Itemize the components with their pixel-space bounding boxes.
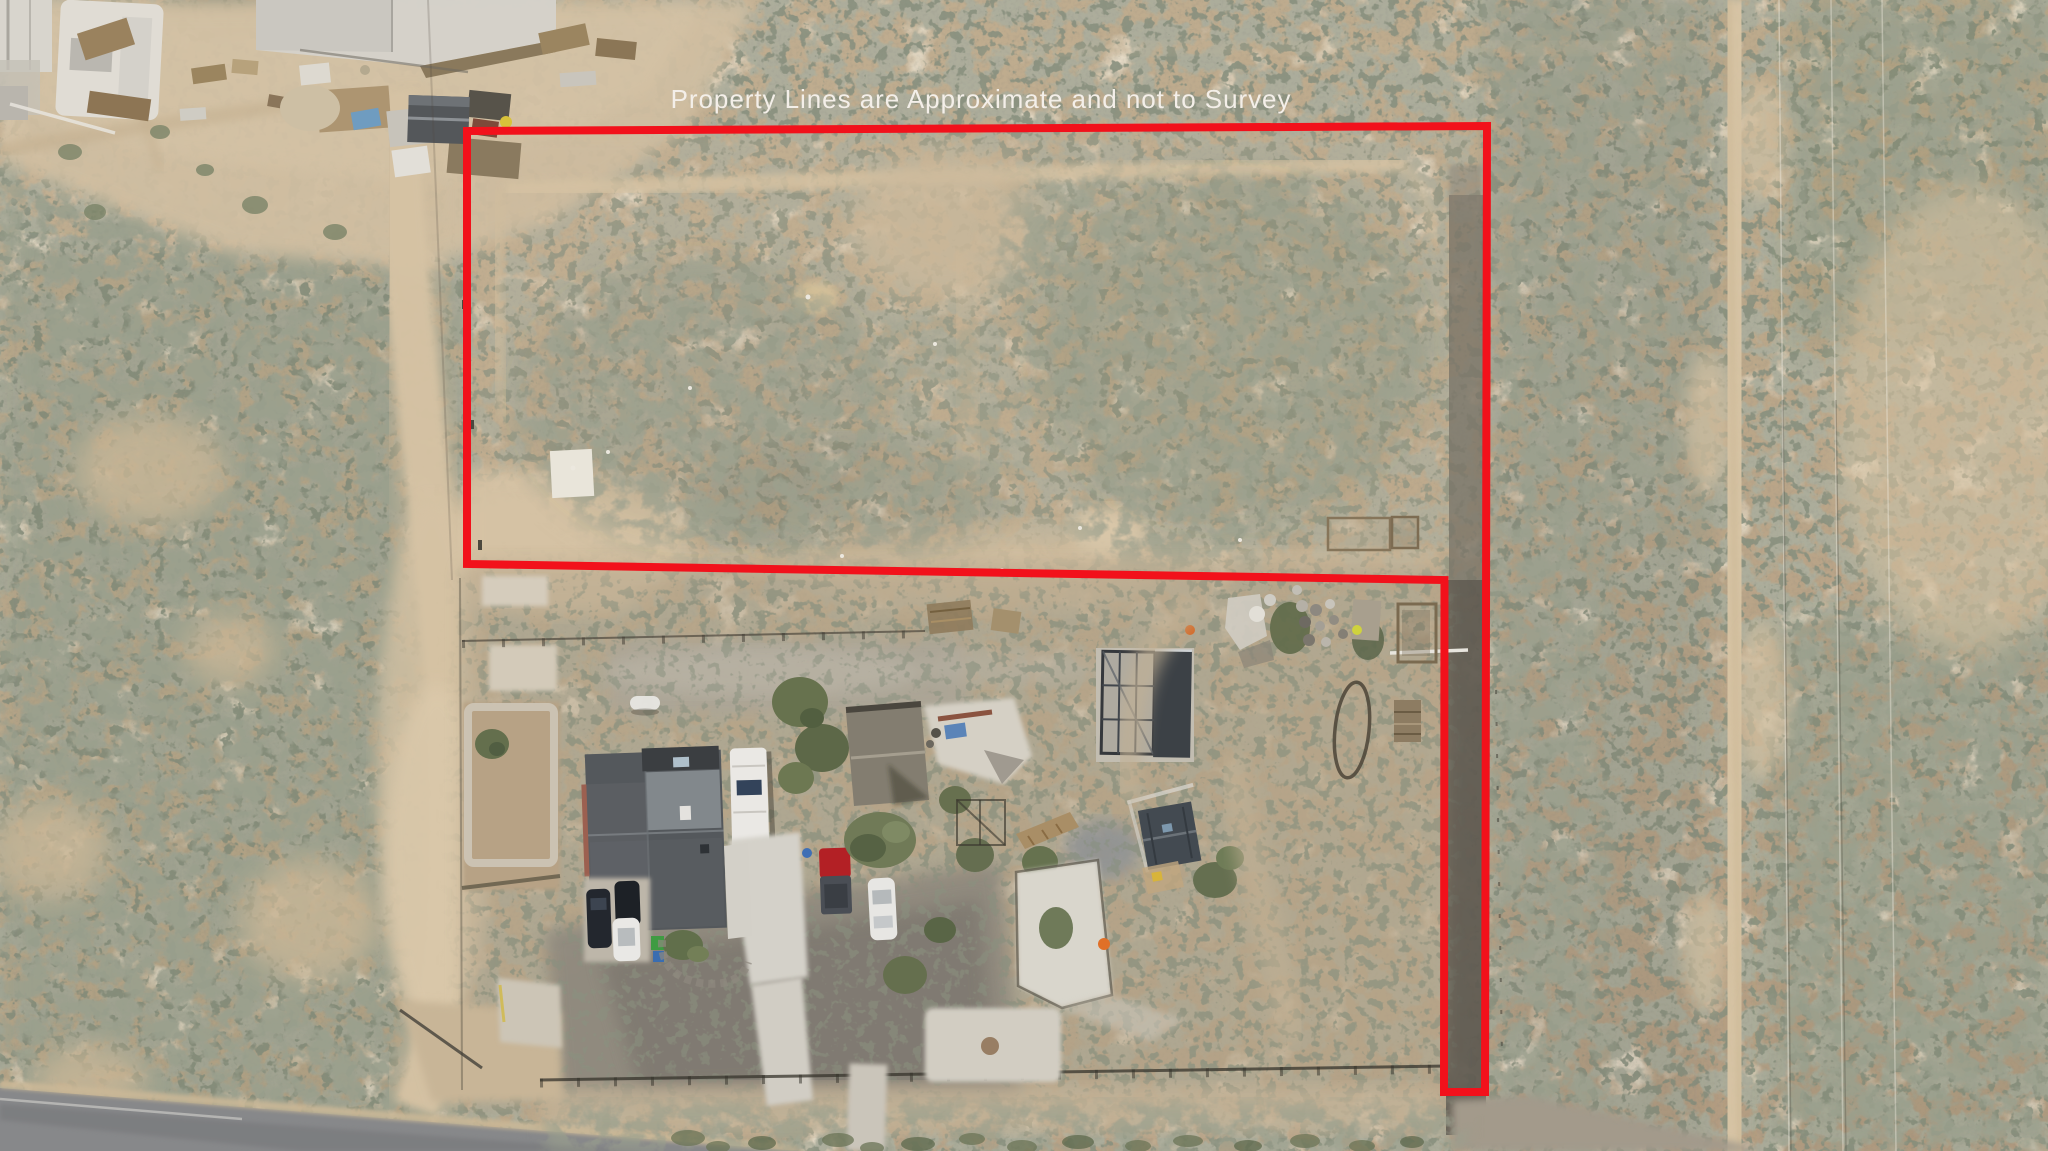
svg-text:Property Lines are Approximate: Property Lines are Approximate and not t… [671,84,1292,114]
